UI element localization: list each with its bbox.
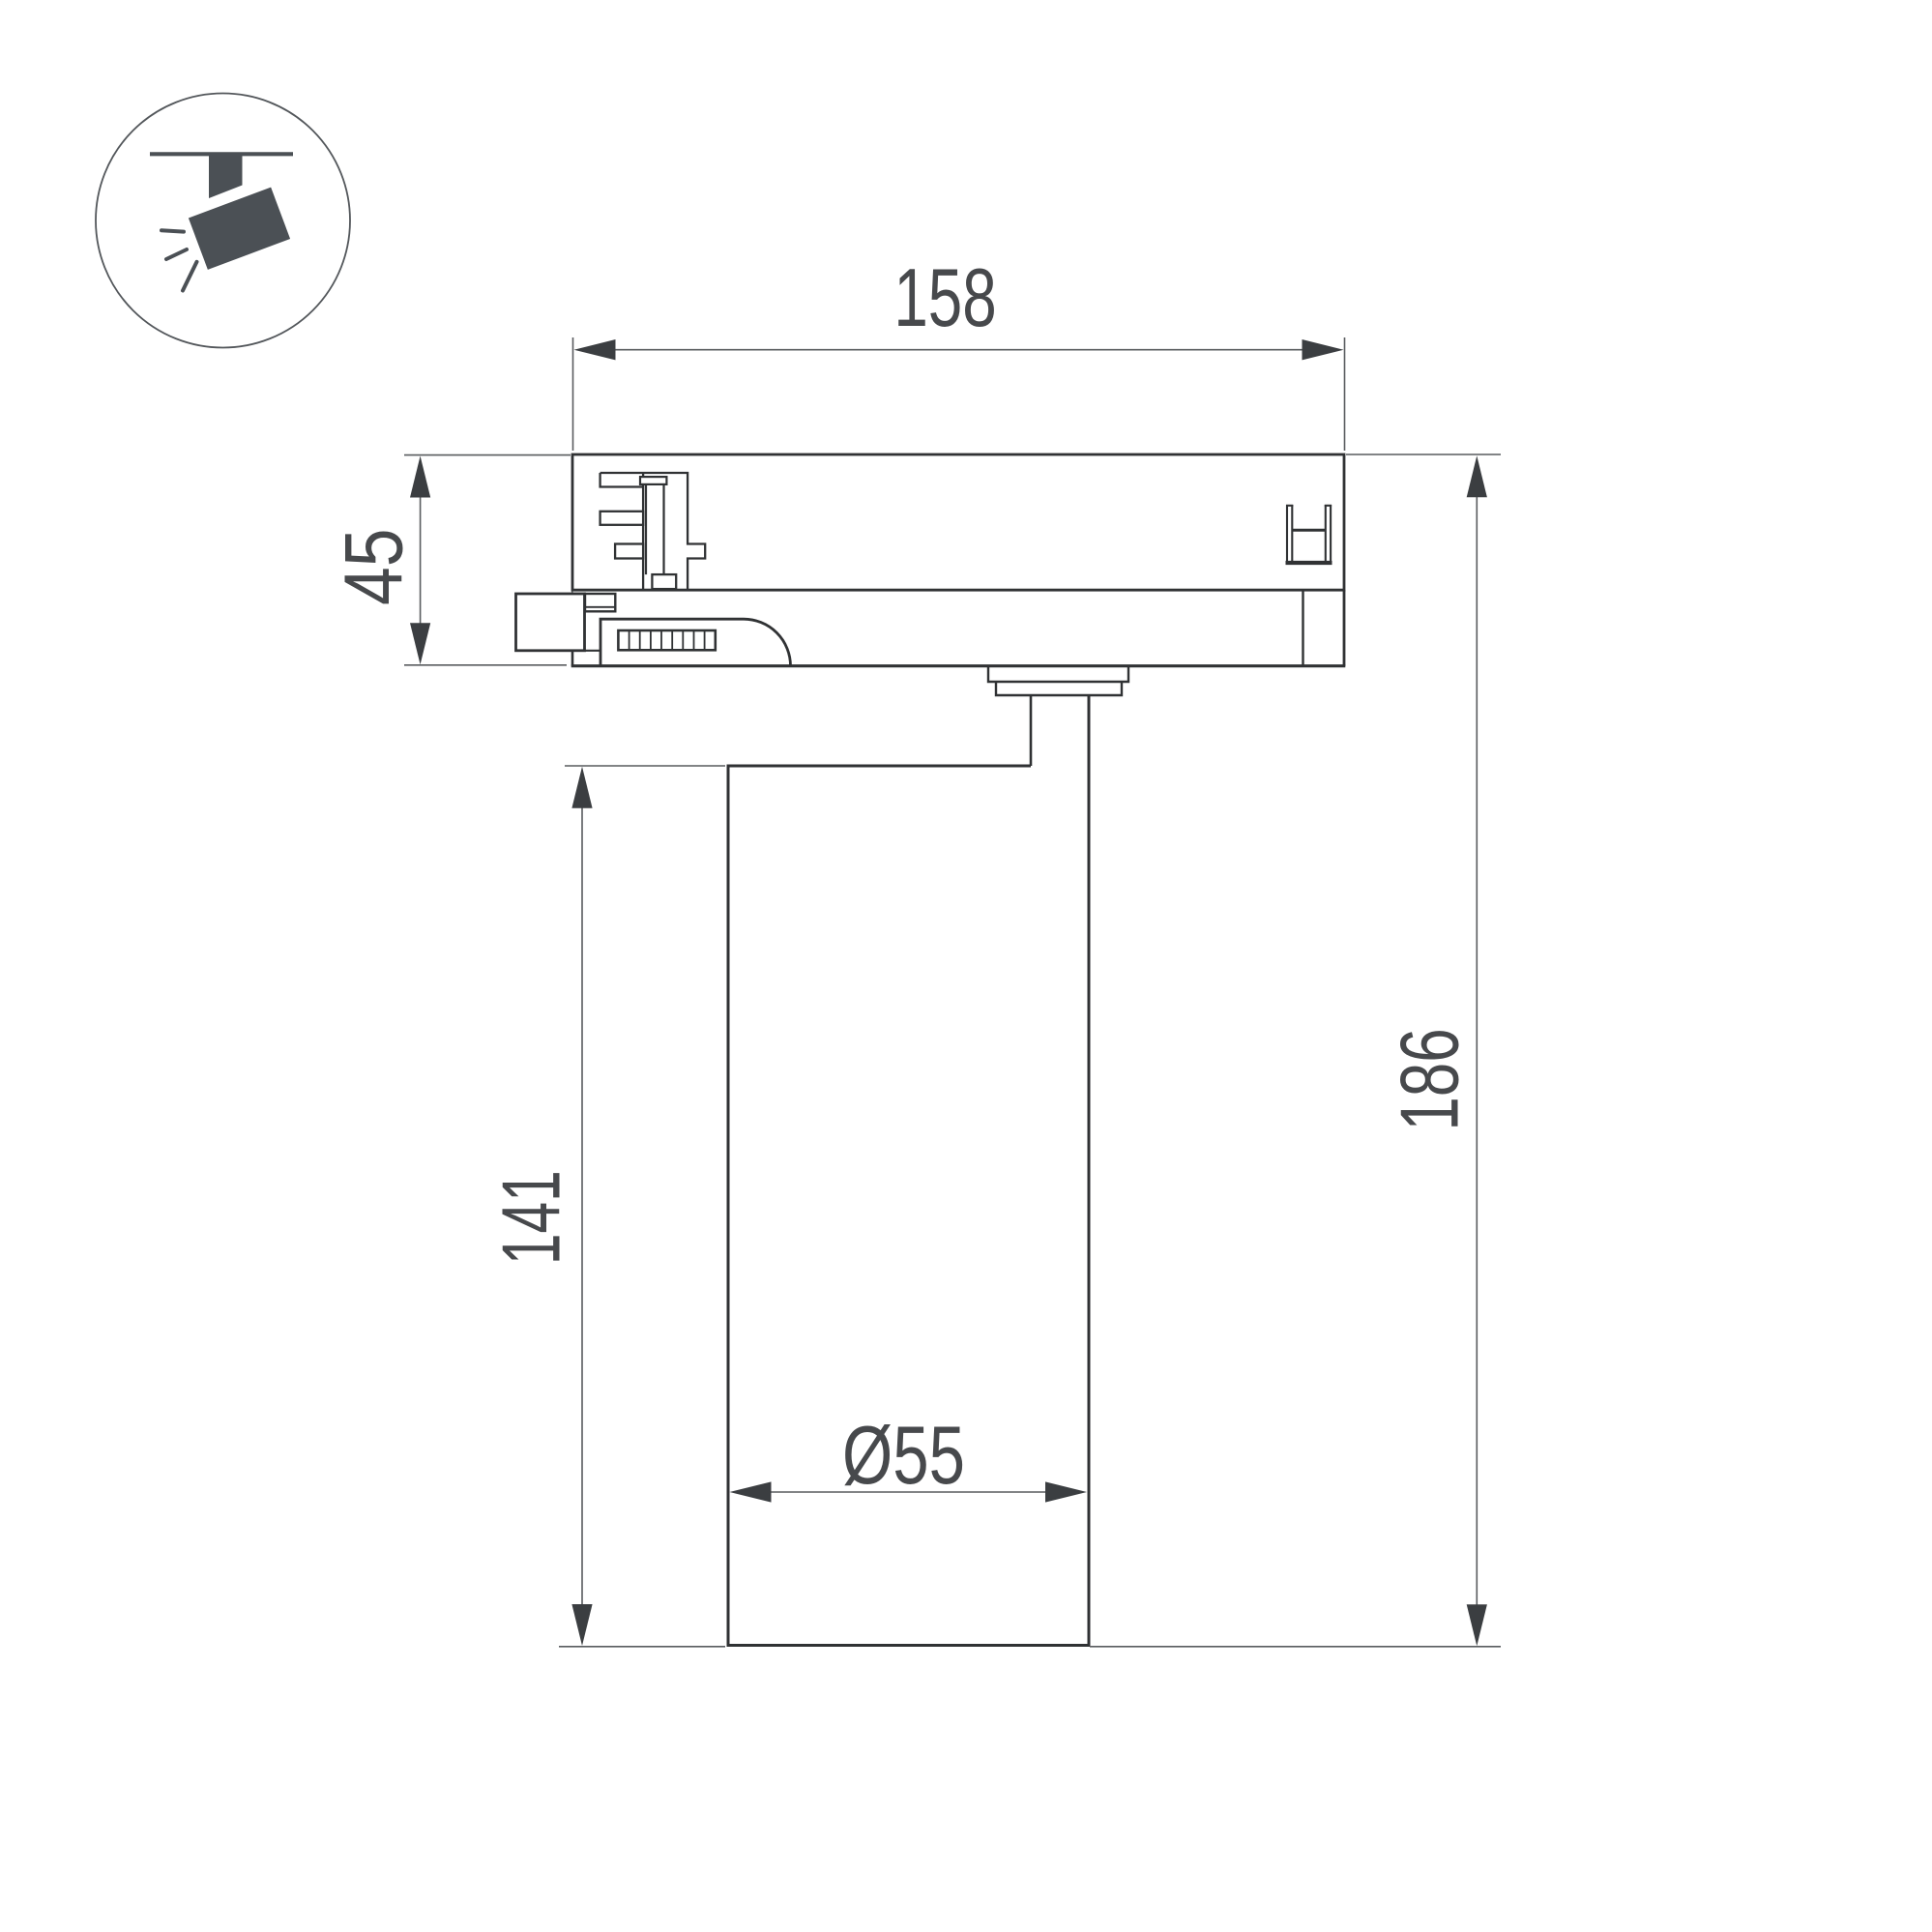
svg-text:Ø55: Ø55: [842, 1410, 965, 1501]
svg-text:141: 141: [486, 1170, 577, 1265]
svg-text:45: 45: [328, 529, 420, 605]
svg-text:158: 158: [893, 251, 996, 343]
svg-text:186: 186: [1384, 1028, 1476, 1130]
